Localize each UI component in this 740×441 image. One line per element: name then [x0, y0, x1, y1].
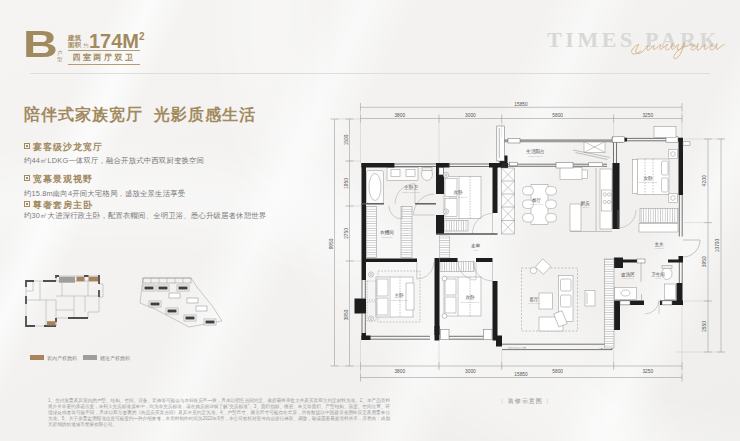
svg-text:15850: 15850: [514, 102, 528, 107]
svg-text:3250: 3250: [642, 113, 653, 118]
svg-text:5800: 5800: [552, 369, 563, 374]
svg-text:主卧卫: 主卧卫: [404, 184, 418, 190]
svg-text:玄关: 玄关: [654, 242, 664, 247]
svg-text:3800: 3800: [394, 113, 405, 118]
svg-text:3000: 3000: [465, 369, 476, 374]
svg-text:示意: 示意: [598, 347, 604, 351]
svg-text:次卧: 次卧: [453, 189, 463, 195]
svg-text:Living room: Living room: [528, 302, 540, 305]
svg-text:4200: 4200: [702, 175, 707, 186]
svg-text:厨房: 厨房: [580, 201, 590, 206]
svg-text:Master Bedroom: Master Bedroom: [390, 299, 408, 302]
svg-text:2550: 2550: [702, 321, 707, 332]
svg-text:衣帽间: 衣帽间: [380, 229, 394, 236]
svg-text:10700: 10700: [715, 239, 720, 253]
svg-text:3250: 3250: [642, 369, 653, 374]
svg-text:Toilet: Toilet: [655, 277, 661, 280]
svg-text:主卧: 主卧: [394, 292, 404, 298]
svg-text:Second Bedroom: Second Bedroom: [461, 301, 479, 304]
svg-text:Vestibule: Vestibule: [654, 247, 664, 250]
svg-text:Master Bathroom: Master Bathroom: [402, 191, 420, 194]
svg-text:Kitchen: Kitchen: [581, 206, 590, 209]
svg-text:9950: 9950: [329, 238, 334, 249]
svg-text:Cloakroom: Cloakroom: [381, 236, 393, 239]
svg-text:1500: 1500: [344, 134, 349, 145]
svg-text:3800: 3800: [394, 369, 405, 374]
svg-text:餐厅: 餐厅: [532, 197, 542, 203]
svg-text:3950: 3950: [344, 309, 349, 320]
svg-text:2750: 2750: [344, 228, 349, 239]
svg-text:15850: 15850: [514, 372, 528, 377]
svg-text:Aisle: Aisle: [473, 249, 479, 252]
svg-text:次卧: 次卧: [465, 294, 475, 300]
svg-text:Living balcony: Living balcony: [528, 155, 544, 158]
svg-text:Second Bedroom: Second Bedroom: [449, 196, 467, 199]
svg-text:3950: 3950: [702, 256, 707, 267]
svg-text:非交付标准示意: 非交付标准示意: [507, 346, 527, 350]
svg-text:Toilet area: Toilet area: [622, 277, 634, 280]
svg-text:Second Bedroom: Second Bedroom: [639, 181, 657, 184]
svg-text:5800: 5800: [552, 113, 563, 118]
svg-text:Dining room: Dining room: [530, 203, 543, 206]
svg-text:3000: 3000: [465, 113, 476, 118]
svg-text:1950: 1950: [344, 178, 349, 189]
svg-text:次卧: 次卧: [643, 175, 653, 181]
